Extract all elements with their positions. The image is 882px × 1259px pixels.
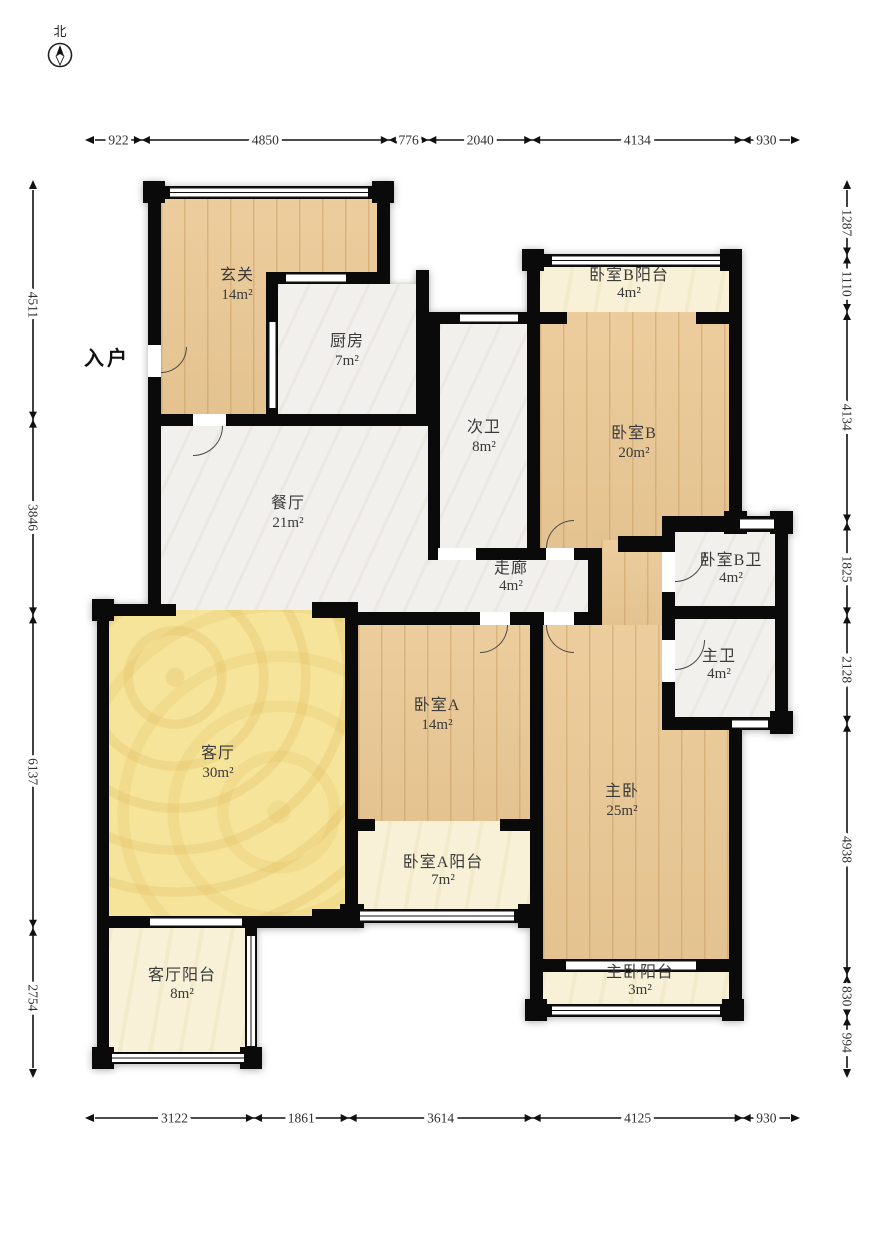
door-opening-ciwei bbox=[438, 548, 476, 560]
room-name: 玄关 bbox=[220, 266, 254, 286]
wall-segment bbox=[148, 414, 429, 426]
room-name: 主卫 bbox=[702, 648, 736, 666]
room-name: 客厅阳台 bbox=[148, 966, 216, 985]
door-opening-entry bbox=[148, 345, 161, 377]
wall-segment bbox=[527, 312, 540, 560]
door-opening-master-bath bbox=[662, 640, 675, 682]
wall-column bbox=[143, 181, 165, 203]
room-area: 30m² bbox=[201, 764, 235, 783]
room-name: 主卧阳台 bbox=[606, 964, 674, 982]
room-area: 7m² bbox=[330, 352, 364, 371]
wall-segment bbox=[345, 819, 375, 831]
room-label-master-bath: 主卫 4m² bbox=[702, 648, 736, 684]
wall-column bbox=[770, 711, 793, 734]
room-label-master: 主卧 25m² bbox=[605, 782, 639, 821]
window bbox=[286, 273, 346, 283]
room-name: 卧室B卫 bbox=[700, 552, 763, 570]
window bbox=[552, 1005, 720, 1016]
wall-column bbox=[522, 249, 544, 271]
window bbox=[112, 1053, 244, 1063]
room-label-xuanguan: 玄关 14m² bbox=[220, 266, 254, 305]
wall-segment bbox=[729, 717, 742, 1017]
wall-segment bbox=[775, 516, 788, 730]
room-area: 8m² bbox=[467, 438, 501, 457]
door-opening-bedroom-a bbox=[480, 612, 510, 625]
room-area: 20m² bbox=[611, 444, 657, 463]
door-opening-master bbox=[544, 612, 574, 625]
room-label-kitchen: 厨房 7m² bbox=[330, 332, 364, 371]
wall-column bbox=[312, 909, 357, 928]
wall-segment bbox=[345, 604, 358, 923]
entrance-label: 入户 bbox=[84, 342, 130, 371]
room-name: 主卧 bbox=[605, 782, 639, 802]
wall-segment bbox=[662, 516, 675, 730]
room-area: 4m² bbox=[702, 666, 736, 683]
door-opening-dining bbox=[193, 414, 226, 426]
wall-column bbox=[92, 1047, 114, 1069]
room-area: 3m² bbox=[606, 982, 674, 999]
wall-segment bbox=[530, 612, 543, 1017]
door-opening-bedroom-b bbox=[546, 548, 574, 560]
room-area: 4m² bbox=[700, 570, 763, 587]
wall-segment bbox=[527, 312, 567, 324]
room-label-ciwei: 次卫 8m² bbox=[467, 418, 501, 457]
wall-segment bbox=[428, 312, 440, 560]
room-name: 卧室B阳台 bbox=[589, 267, 669, 285]
wall-column bbox=[92, 599, 114, 621]
sliding-door bbox=[150, 917, 242, 927]
wall-column bbox=[525, 999, 547, 1021]
window bbox=[740, 518, 774, 530]
wall-segment bbox=[148, 186, 161, 616]
floor-plan bbox=[0, 0, 882, 1259]
room-label-corridor: 走廊 4m² bbox=[494, 560, 528, 596]
room-label-balcony-b: 卧室B阳台 4m² bbox=[589, 267, 669, 303]
room-area: 21m² bbox=[271, 514, 305, 533]
window bbox=[246, 936, 256, 1046]
room-label-living-balcony: 客厅阳台 8m² bbox=[148, 966, 216, 1003]
window bbox=[268, 322, 277, 408]
room-area: 8m² bbox=[148, 985, 216, 1003]
room-label-dining: 餐厅 21m² bbox=[271, 494, 305, 533]
window bbox=[460, 313, 518, 323]
room-name: 卧室A bbox=[414, 696, 461, 716]
room-name: 卧室B bbox=[611, 424, 657, 444]
wall-column bbox=[720, 249, 742, 271]
wall-segment bbox=[729, 254, 742, 518]
window bbox=[732, 719, 768, 729]
wall-segment bbox=[148, 604, 176, 616]
room-area: 4m² bbox=[494, 578, 528, 595]
compass-icon: 北 bbox=[40, 22, 84, 72]
room-area: 14m² bbox=[220, 286, 254, 305]
room-name: 厨房 bbox=[330, 332, 364, 352]
room-label-bedroom-a-balcony: 卧室A阳台 7m² bbox=[403, 854, 484, 890]
room-area: 14m² bbox=[414, 716, 461, 735]
room-name: 卧室A阳台 bbox=[403, 854, 484, 872]
room-label-bedroom-b: 卧室B 20m² bbox=[611, 424, 657, 463]
window bbox=[552, 255, 720, 266]
door-opening-bedroom-b-bath bbox=[662, 552, 675, 592]
compass-north-label: 北 bbox=[53, 24, 66, 39]
wall-segment bbox=[97, 604, 109, 1064]
room-label-master-balcony: 主卧阳台 3m² bbox=[606, 964, 674, 998]
window bbox=[170, 187, 368, 198]
room-name: 次卫 bbox=[467, 418, 501, 438]
wall-column bbox=[372, 181, 394, 203]
wall-column bbox=[722, 999, 744, 1021]
room-name: 走廊 bbox=[494, 560, 528, 578]
wall-segment bbox=[500, 819, 530, 831]
window bbox=[360, 910, 514, 922]
room-name: 餐厅 bbox=[271, 494, 305, 514]
room-area: 7m² bbox=[403, 872, 484, 889]
floor-plan-page: 玄关 14m² 厨房 7m² 次卫 8m² 卧室B阳台 4m² 卧室B 20m²… bbox=[0, 0, 882, 1259]
wall-column bbox=[518, 904, 543, 928]
room-name: 客厅 bbox=[201, 744, 235, 764]
compass-needle-south bbox=[56, 54, 64, 66]
wall-segment bbox=[662, 606, 788, 619]
room-label-bedroom-b-bath: 卧室B卫 4m² bbox=[700, 552, 763, 588]
room-label-living: 客厅 30m² bbox=[201, 744, 235, 783]
room-nook-floor bbox=[601, 540, 662, 625]
room-area: 25m² bbox=[605, 802, 639, 821]
room-area: 4m² bbox=[589, 285, 669, 302]
room-label-bedroom-a: 卧室A 14m² bbox=[414, 696, 461, 735]
